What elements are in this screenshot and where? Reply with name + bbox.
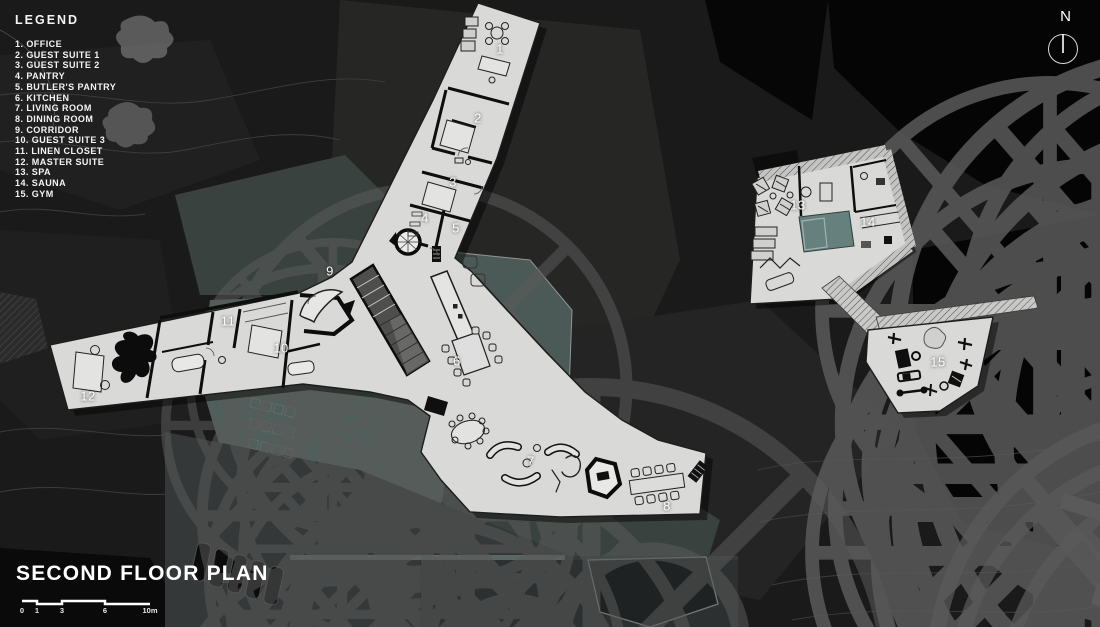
legend-item-1: 1. OFFICE — [15, 39, 116, 50]
page-title: SECOND FLOOR PLAN — [16, 562, 269, 586]
floor-plan-canvas: LEGEND 1. OFFICE 2. GUEST SUITE 1 3. GUE… — [0, 0, 1100, 627]
room-label-pantry: 4 — [421, 211, 429, 226]
scale-tick-1: 1 — [35, 606, 39, 615]
room-label-sauna: 14 — [860, 215, 875, 230]
room-label-linen-closet: 11 — [221, 314, 236, 329]
room-label-master-suite: 12 — [80, 389, 95, 404]
room-label-guest-suite-3: 10 — [273, 341, 288, 356]
room-label-spa: 13 — [790, 198, 805, 213]
legend-item-7: 7. LIVING ROOM — [15, 103, 116, 114]
scale-bar — [0, 594, 200, 624]
legend-item-14: 14. SAUNA — [15, 178, 116, 189]
room-label-guest-suite-1: 2 — [474, 111, 482, 126]
legend-item-6: 6. KITCHEN — [15, 93, 116, 104]
north-label: N — [1060, 8, 1071, 25]
legend-heading: LEGEND — [15, 13, 116, 27]
room-label-office: 1 — [496, 42, 504, 57]
north-arrow: N — [1038, 8, 1093, 83]
room-label-kitchen: 6 — [453, 354, 461, 369]
legend-item-8: 8. DINING ROOM — [15, 114, 116, 125]
scale-tick-3: 3 — [60, 606, 64, 615]
room-label-living-room: 7 — [527, 454, 535, 469]
legend-item-13: 13. SPA — [15, 167, 116, 178]
room-label-dining-room: 8 — [663, 499, 671, 514]
legend-list: 1. OFFICE 2. GUEST SUITE 1 3. GUEST SUIT… — [15, 39, 116, 200]
room-label-butlers-pantry: 5 — [452, 221, 460, 236]
scale-tick-6: 6 — [103, 606, 107, 615]
blob-tree-icon — [116, 15, 174, 63]
legend-item-11: 11. LINEN CLOSET — [15, 146, 116, 157]
site-plan-drawing — [0, 0, 1100, 627]
room-label-gym: 15 — [930, 355, 945, 370]
room-label-corridor: 9 — [326, 264, 334, 279]
legend-item-10: 10. GUEST SUITE 3 — [15, 135, 116, 146]
scale-tick-0: 0 — [20, 606, 24, 615]
legend-item-2: 2. GUEST SUITE 1 — [15, 50, 116, 61]
fireplace — [587, 459, 620, 497]
scale-tick-10m: 10m — [142, 606, 157, 615]
legend-item-5: 5. BUTLER'S PANTRY — [15, 82, 116, 93]
legend-panel: LEGEND 1. OFFICE 2. GUEST SUITE 1 3. GUE… — [15, 13, 116, 200]
legend-item-9: 9. CORRIDOR — [15, 125, 116, 136]
room-label-guest-suite-2: 3 — [449, 175, 457, 190]
legend-item-15: 15. GYM — [15, 189, 116, 200]
legend-item-4: 4. PANTRY — [15, 71, 116, 82]
legend-item-3: 3. GUEST SUITE 2 — [15, 60, 116, 71]
legend-item-12: 12. MASTER SUITE — [15, 157, 116, 168]
